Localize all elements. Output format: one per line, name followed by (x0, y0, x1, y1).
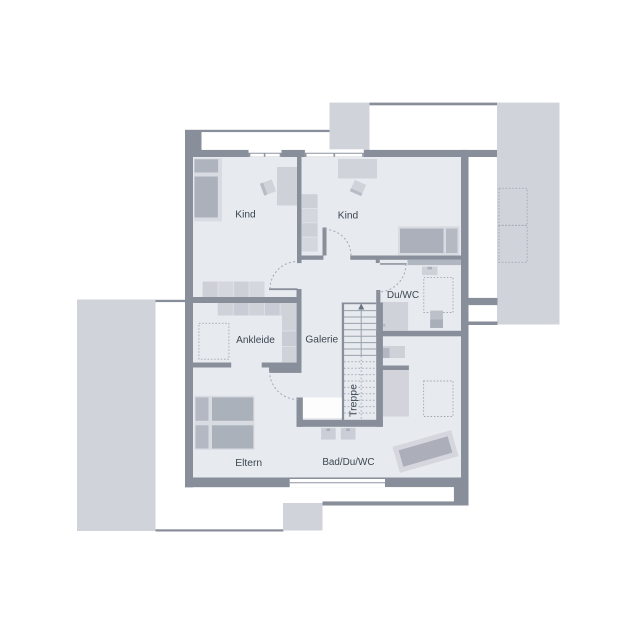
svg-text:Eltern: Eltern (235, 458, 262, 469)
svg-text:Kind: Kind (338, 211, 359, 222)
svg-text:Du/WC: Du/WC (387, 290, 419, 301)
svg-text:Galerie: Galerie (305, 335, 338, 346)
svg-text:Bad/Du/WC: Bad/Du/WC (322, 457, 374, 468)
svg-text:Treppe: Treppe (347, 384, 359, 417)
svg-text:Kind: Kind (235, 210, 256, 221)
svg-text:Ankleide: Ankleide (236, 335, 275, 346)
